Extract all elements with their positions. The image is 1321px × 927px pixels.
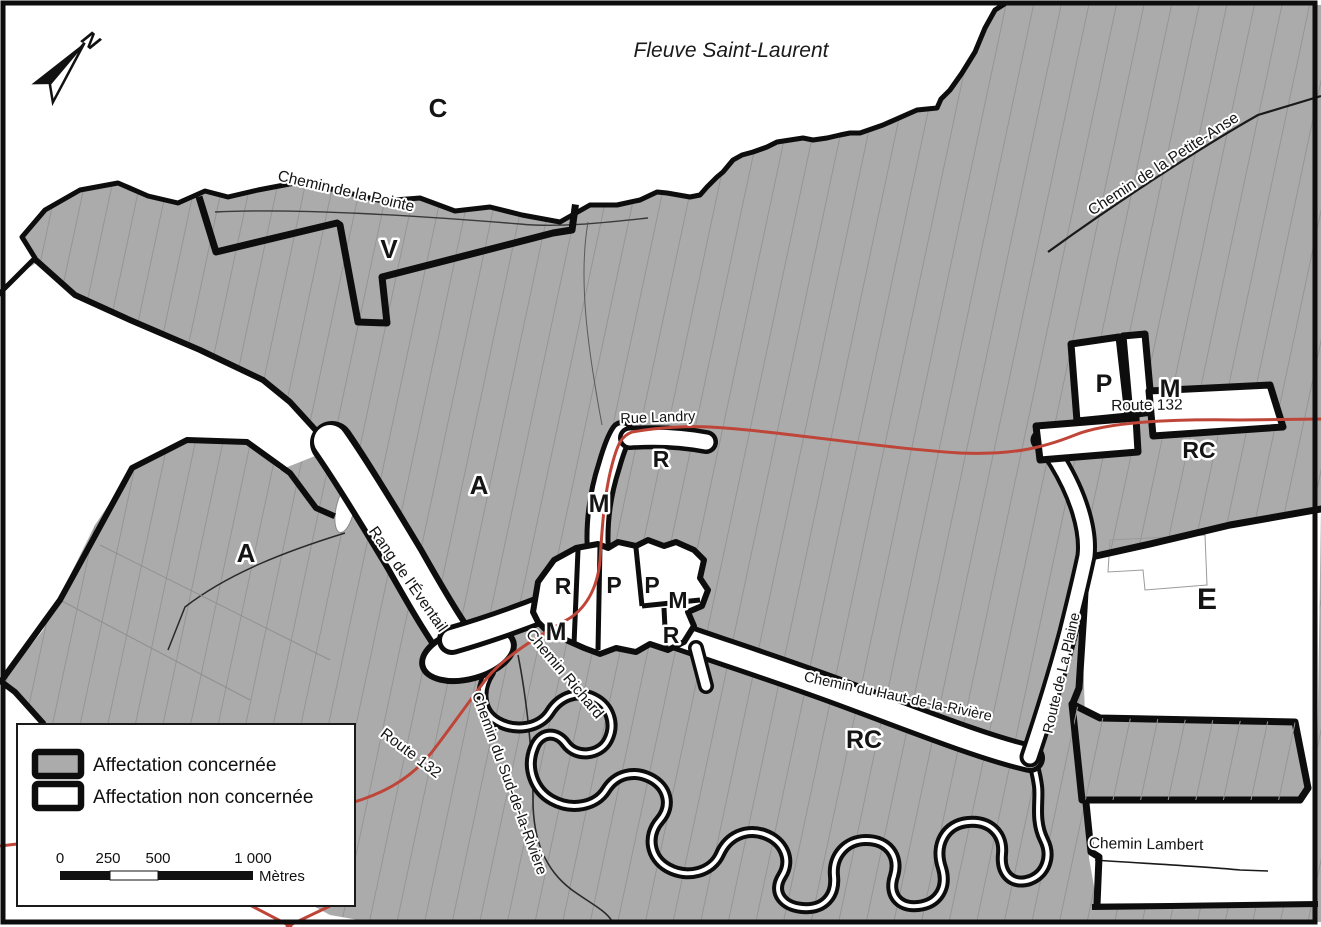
zone-label-r-village-west: R [555, 573, 572, 599]
map-canvas: Chemin de la Pointe Chemin de la Petite-… [0, 0, 1321, 927]
scale-unit: Mètres [259, 868, 305, 885]
legend-swatch-non-concernee [35, 784, 81, 808]
north-arrow: N [31, 26, 105, 103]
scale-bar-segment-1 [60, 871, 110, 880]
zone-label-v: V [380, 234, 398, 264]
landry-branch-fill [630, 437, 706, 442]
road-label-rue-landry: Rue Landry [620, 409, 696, 428]
map-title: Fleuve Saint-Laurent [634, 39, 830, 62]
zone-label-e: E [1197, 583, 1217, 616]
legend-swatch-concernee [35, 752, 81, 776]
scale-tick-0: 0 [56, 850, 64, 867]
zone-label-a-west: A [237, 538, 256, 568]
bottom-strip-boundary [1095, 904, 1315, 907]
zone-label-m-village-west: M [546, 618, 567, 646]
zone-label-p-village-1: P [606, 572, 621, 598]
road-label-lambert: Chemin Lambert [1089, 835, 1205, 854]
scale-bar-segment-3 [158, 871, 253, 880]
zone-label-m-hamlet: M [1160, 375, 1181, 403]
legend-label-non-concernee: Affectation non concernée [93, 787, 313, 808]
zone-label-r-village-south: R [663, 622, 680, 648]
zone-label-c: C [429, 93, 448, 123]
zone-label-p-village-2: P [644, 572, 659, 598]
scale-tick-250: 250 [95, 850, 120, 867]
zone-label-p-hamlet: P [1096, 370, 1113, 398]
zone-label-m-village-east: M [668, 587, 687, 613]
zone-label-m-landry: M [589, 490, 610, 518]
scale-tick-1000: 1 000 [234, 850, 272, 867]
legend: Affectation concernée Affectation non co… [17, 724, 355, 906]
zone-label-a-center: A [470, 470, 489, 500]
scale-tick-500: 500 [145, 850, 170, 867]
legend-label-concernee: Affectation concernée [93, 755, 276, 776]
zoning-map: Chemin de la Pointe Chemin de la Petite-… [0, 0, 1321, 927]
zone-label-rc-haut: RC [846, 726, 882, 754]
scale-bar-segment-2 [110, 871, 158, 880]
zone-label-rc-hamlet: RC [1182, 437, 1215, 463]
zone-label-r-landry: R [653, 446, 670, 472]
